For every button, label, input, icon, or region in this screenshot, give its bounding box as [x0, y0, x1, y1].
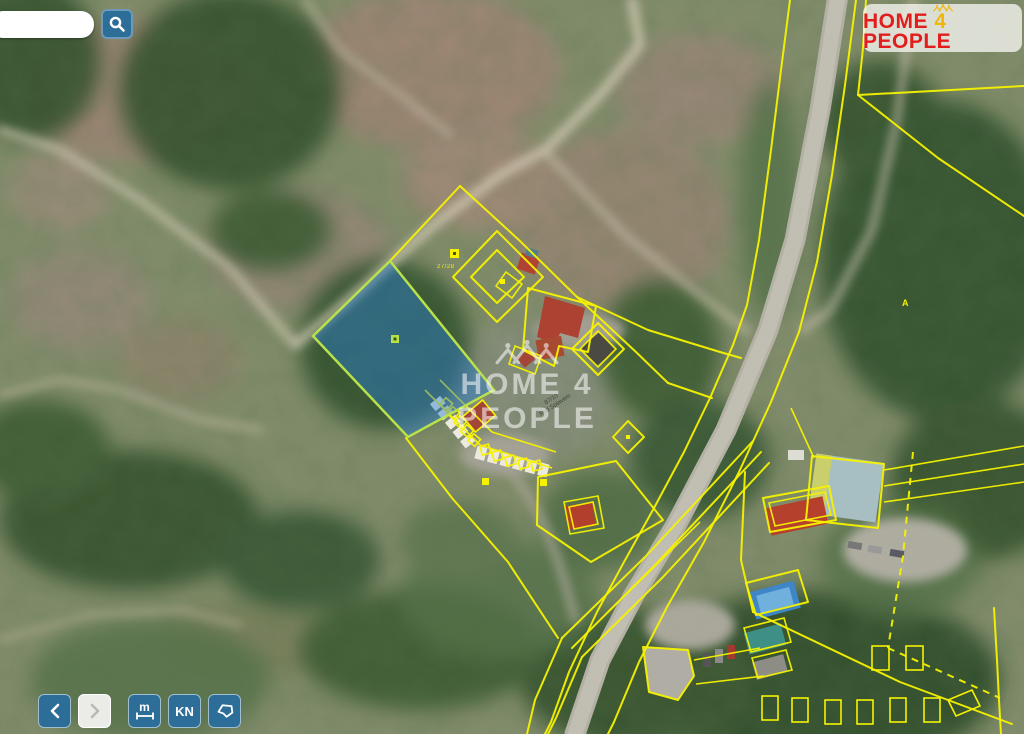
search-button[interactable] — [101, 9, 133, 39]
aerial-map-canvas[interactable] — [0, 0, 1024, 734]
brand-word-people: PEOPLE — [863, 30, 951, 53]
chevron-right-icon — [88, 703, 102, 719]
chevron-left-icon — [48, 703, 62, 719]
measure-icon: m — [135, 703, 155, 720]
selected-parcel-marker-dot — [394, 338, 397, 341]
brand-logo: HOME 4 PEOPLE — [863, 4, 1022, 52]
search-icon — [108, 15, 126, 33]
search-input[interactable] — [0, 11, 94, 38]
forward-button[interactable] — [78, 694, 111, 728]
map-viewport: 27/28 87/10 Pod Splavem A HOME 4 PEOPLE — [0, 0, 1024, 734]
measure-button[interactable]: m — [128, 694, 161, 728]
terrain-layer — [0, 0, 1024, 734]
polygon-icon — [215, 702, 235, 720]
kn-label: KN — [175, 704, 194, 719]
measure-label: m — [139, 703, 150, 712]
cadastre-kn-button[interactable]: KN — [168, 694, 201, 728]
polygon-tool-button[interactable] — [208, 694, 241, 728]
brand-text: HOME 4 PEOPLE — [863, 12, 1022, 52]
search-bar — [0, 9, 133, 39]
back-button[interactable] — [38, 694, 71, 728]
ruler-icon — [135, 712, 155, 720]
